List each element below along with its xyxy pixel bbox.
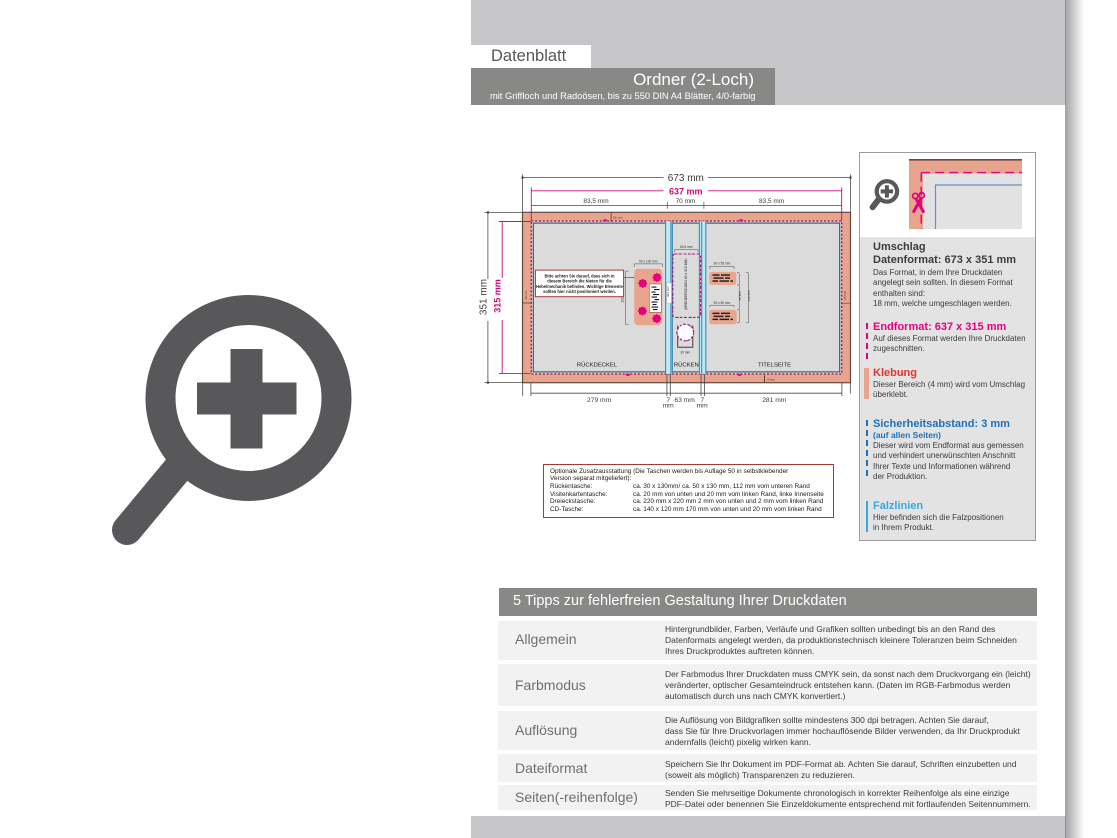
svg-text:63,5 mm: 63,5 mm bbox=[680, 245, 693, 249]
svg-text:18 mm: 18 mm bbox=[524, 290, 528, 300]
svg-text:55 mm: 55 mm bbox=[738, 291, 742, 301]
svg-text:RÜCKEN: RÜCKEN bbox=[674, 362, 699, 369]
svg-text:mm: mm bbox=[663, 402, 675, 409]
svg-text:83,5 mm: 83,5 mm bbox=[759, 198, 784, 205]
svg-text:30 mm: 30 mm bbox=[680, 351, 690, 355]
svg-text:83,5 mm: 83,5 mm bbox=[583, 198, 608, 205]
svg-text:351 mm: 351 mm bbox=[479, 279, 490, 315]
svg-text:70 mm: 70 mm bbox=[676, 198, 696, 205]
svg-text:50 x 130 mm: 50 x 130 mm bbox=[639, 259, 658, 263]
svg-text:281 mm: 281 mm bbox=[762, 397, 787, 404]
svg-text:279 mm: 279 mm bbox=[587, 397, 612, 404]
svg-text:315 mm: 315 mm bbox=[493, 279, 503, 313]
svg-text:90 x 55 mm: 90 x 55 mm bbox=[714, 262, 731, 266]
svg-text:18 mm: 18 mm bbox=[843, 290, 847, 300]
svg-text:4 mm: 4 mm bbox=[767, 377, 775, 381]
svg-text:TITELSEITE: TITELSEITE bbox=[758, 363, 791, 369]
svg-text:637 mm: 637 mm bbox=[669, 187, 703, 197]
svg-text:18 mm: 18 mm bbox=[613, 216, 623, 220]
svg-text:sollten hier nicht positionier: sollten hier nicht positioniert werden. bbox=[543, 289, 616, 294]
svg-text:(ORDNERRÜCKEN 63 x 303 MM): (ORDNERRÜCKEN 63 x 303 MM) bbox=[684, 258, 688, 310]
svg-text:mm: mm bbox=[697, 402, 709, 409]
svg-text:RÜCKDECKEL: RÜCKDECKEL bbox=[577, 362, 618, 369]
svg-text:673 mm: 673 mm bbox=[668, 173, 704, 184]
svg-text:90 x 60 mm: 90 x 60 mm bbox=[714, 301, 731, 305]
svg-text:210 mm: 210 mm bbox=[747, 290, 751, 301]
svg-text:63 mm: 63 mm bbox=[674, 397, 695, 404]
svg-text:303 mm: 303 mm bbox=[666, 286, 670, 297]
